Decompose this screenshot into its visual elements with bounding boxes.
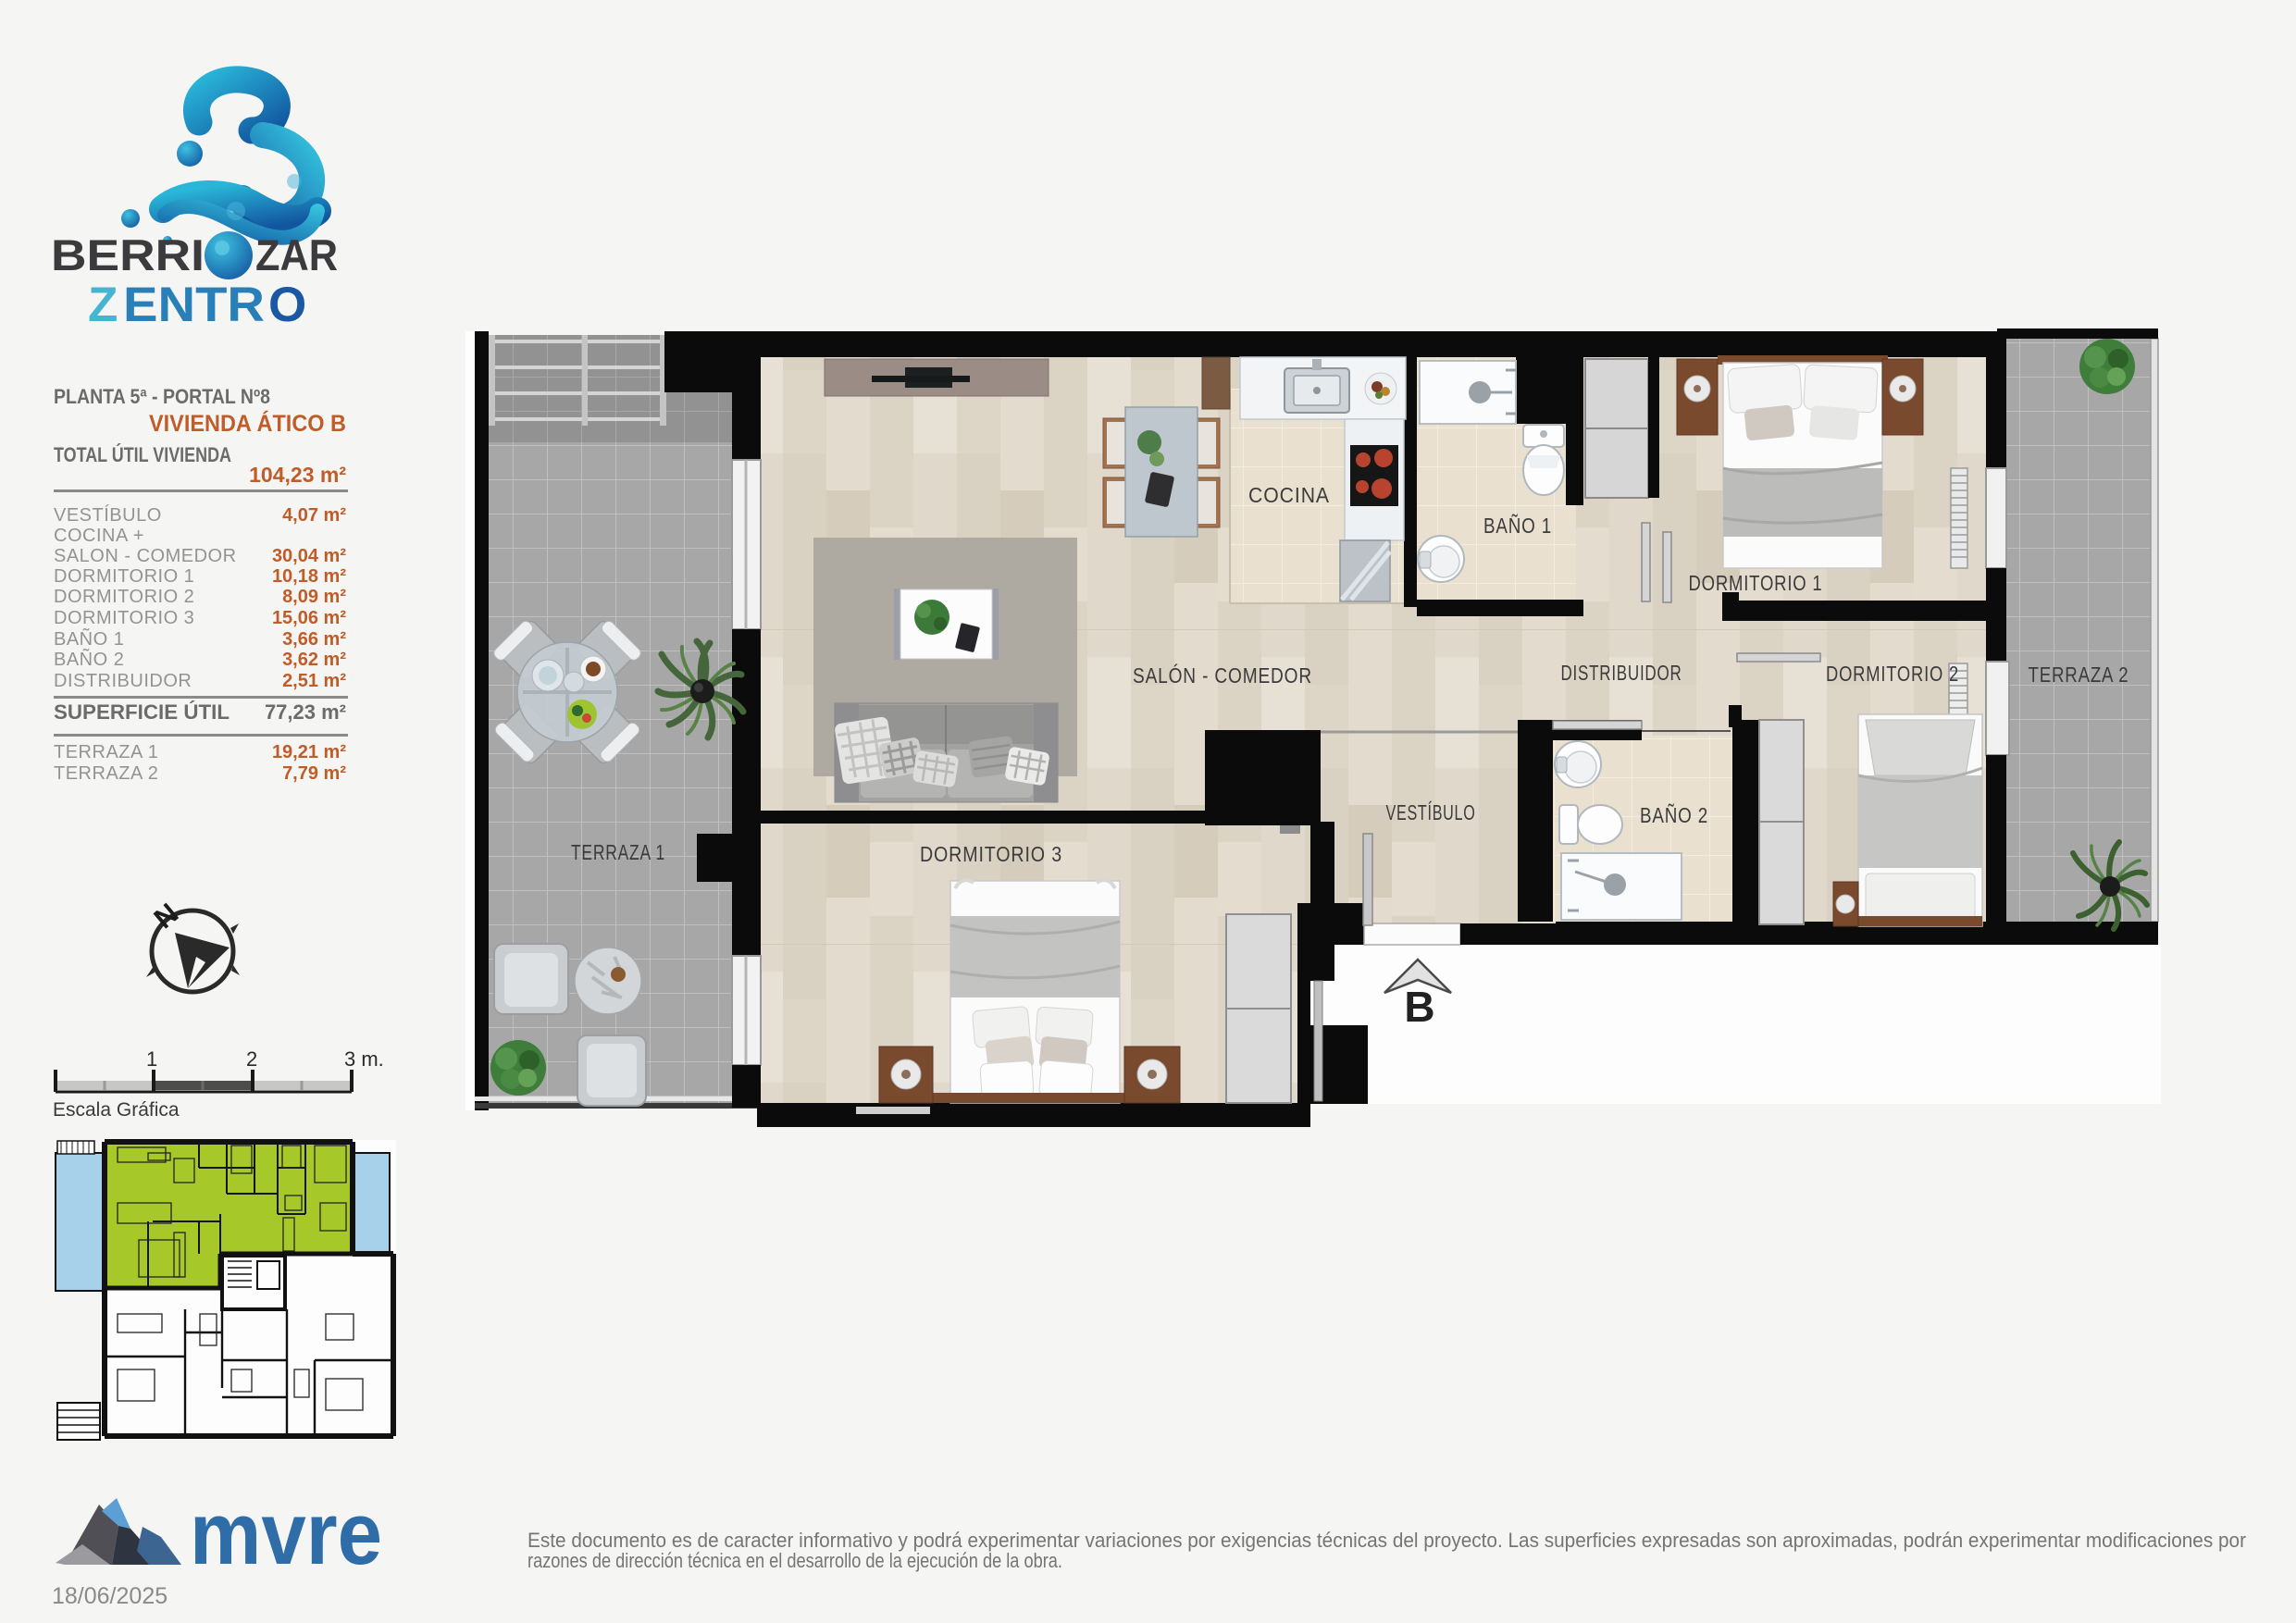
- svg-text:2,51 m²: 2,51 m²: [282, 671, 346, 691]
- svg-text:19,21 m²: 19,21 m²: [272, 742, 346, 762]
- svg-text:TERRAZA 1: TERRAZA 1: [571, 840, 665, 864]
- svg-text:DISTRIBUIDOR: DISTRIBUIDOR: [1561, 661, 1682, 685]
- svg-text:15,06 m²: 15,06 m²: [272, 608, 346, 628]
- svg-text:mvre: mvre: [190, 1484, 382, 1583]
- svg-text:8,09 m²: 8,09 m²: [282, 587, 346, 607]
- svg-text:77,23 m²: 77,23 m²: [265, 700, 346, 724]
- svg-text:BAÑO 1: BAÑO 1: [1483, 514, 1552, 538]
- svg-text:104,23 m²: 104,23 m²: [249, 463, 346, 487]
- svg-text:VESTÍBULO: VESTÍBULO: [54, 504, 162, 526]
- svg-text:O: O: [268, 278, 306, 332]
- svg-text:3,62 m²: 3,62 m²: [282, 650, 346, 670]
- svg-text:4,07 m²: 4,07 m²: [282, 505, 346, 526]
- svg-text:PLANTA 5ª - PORTAL Nº8: PLANTA 5ª - PORTAL Nº8: [54, 385, 270, 408]
- svg-text:7,79 m²: 7,79 m²: [282, 763, 346, 784]
- svg-text:10,18 m²: 10,18 m²: [272, 566, 346, 587]
- svg-text:18/06/2025: 18/06/2025: [52, 1583, 168, 1609]
- svg-text:BAÑO 2: BAÑO 2: [54, 648, 124, 670]
- svg-text:3,66 m²: 3,66 m²: [282, 629, 346, 650]
- svg-text:SALÓN - COMEDOR: SALÓN - COMEDOR: [1133, 663, 1312, 688]
- svg-text:TOTAL ÚTIL VIVIENDA: TOTAL ÚTIL VIVIENDA: [54, 443, 231, 466]
- svg-text:Escala Gráfica: Escala Gráfica: [53, 1099, 180, 1121]
- svg-text:COCINA: COCINA: [1248, 483, 1330, 507]
- svg-text:TERRAZA 2: TERRAZA 2: [2029, 663, 2129, 687]
- svg-text:DORMITORIO 2: DORMITORIO 2: [1826, 662, 1959, 686]
- svg-text:ENTR: ENTR: [123, 278, 265, 332]
- svg-text:TERRAZA 2: TERRAZA 2: [54, 763, 158, 784]
- svg-text:BERRI: BERRI: [51, 230, 205, 279]
- svg-text:BAÑO 2: BAÑO 2: [1640, 803, 1708, 827]
- svg-text:DORMITORIO 2: DORMITORIO 2: [54, 587, 194, 607]
- svg-text:1: 1: [146, 1047, 157, 1071]
- svg-text:ZAR: ZAR: [255, 230, 338, 279]
- svg-text:TERRAZA 1: TERRAZA 1: [54, 742, 158, 762]
- svg-text:Z: Z: [88, 278, 118, 332]
- svg-text:VIVIENDA ÁTICO B: VIVIENDA ÁTICO B: [149, 410, 346, 437]
- svg-text:30,04 m²: 30,04 m²: [272, 546, 346, 566]
- svg-text:SALON - COMEDOR: SALON - COMEDOR: [54, 546, 237, 566]
- svg-text:DORMITORIO 1: DORMITORIO 1: [54, 566, 194, 587]
- svg-text:DORMITORIO 1: DORMITORIO 1: [1689, 571, 1823, 595]
- svg-text:DORMITORIO 3: DORMITORIO 3: [920, 842, 1062, 866]
- svg-text:BAÑO 1: BAÑO 1: [54, 627, 124, 650]
- svg-text:3 m.: 3 m.: [344, 1047, 384, 1071]
- svg-text:2: 2: [246, 1047, 257, 1071]
- svg-text:DORMITORIO 3: DORMITORIO 3: [54, 608, 194, 628]
- svg-text:VESTÍBULO: VESTÍBULO: [1386, 800, 1476, 824]
- svg-text:B: B: [1404, 983, 1434, 1031]
- svg-text:COCINA +: COCINA +: [54, 526, 144, 546]
- svg-text:SUPERFICIE ÚTIL: SUPERFICIE ÚTIL: [54, 700, 230, 724]
- svg-text:DISTRIBUIDOR: DISTRIBUIDOR: [54, 671, 192, 691]
- svg-text:razones de dirección técnica e: razones de dirección técnica en el desar…: [527, 1549, 1062, 1572]
